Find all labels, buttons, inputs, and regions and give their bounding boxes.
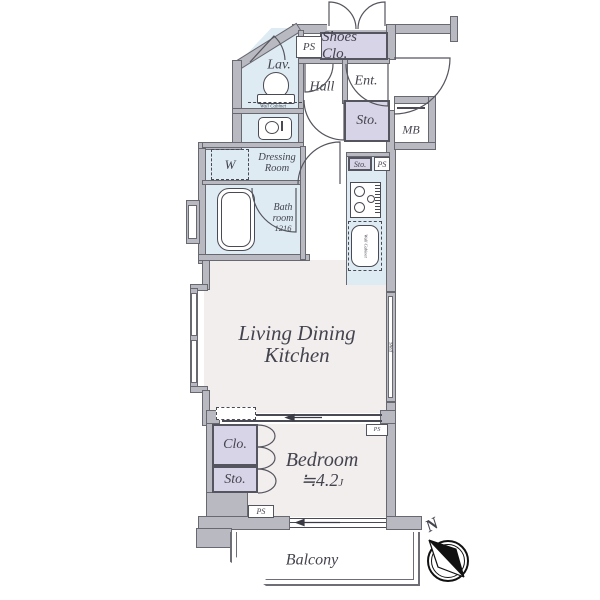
wall-sink-dressing [202,142,304,148]
entrance-storage: Sto. [344,100,390,142]
mb-slit [397,107,425,109]
wall-passage [300,146,306,260]
entrance-storage-label: Sto. [356,113,377,129]
bathroom-line1: Bath [273,203,294,214]
lavatory-label: Lav. [267,59,290,74]
kitchen-storage: Sto. [348,157,372,171]
wall-hall-ent [342,58,348,104]
wall-top-right [388,24,458,34]
kitchen-wall-cabinet-label: Wall Cabinet [363,234,368,257]
bedroom-closet-label: Clo. [223,437,247,453]
bath-window [188,205,197,239]
bathroom-size: 1216 [273,224,294,233]
dressing-room-label: Dressing Room [258,152,296,174]
bay-window-upper [191,293,197,336]
compass-north-label: N [422,514,441,536]
ldk-counter-dashed [216,407,256,420]
washer-label: W [225,158,236,172]
ldk-label: Living Dining Kitchen [238,322,355,366]
shelf-label: Shelf [387,342,392,352]
bedroom-closet: Clo. [212,424,258,466]
bedroom-balcony-window [290,518,386,528]
lav-cabinet-dash [248,102,302,103]
dressing-room-line1: Dressing [258,152,296,163]
lav-wall-cabinet-label: Wall Cabinet [260,104,286,109]
washer-box: W [211,149,249,180]
bedroom-storage-label: Sto. [224,472,245,488]
pipe-space-bedroom: PS [248,505,274,518]
mb-wall-bottom [394,142,436,150]
pipe-space-kitchen: PS [374,157,390,171]
pipe-space-top: PS [296,36,322,58]
pipe-space-bedroom-corner-label: PS [374,427,381,433]
kitchen-storage-label: Sto. [354,160,366,169]
meter-box-label: MB [402,124,419,137]
washbasin-bowl-icon [265,121,279,134]
wall-ldk-bed-right [380,410,396,424]
balcony-label: Balcony [286,553,338,570]
ldk-line2: Kitchen [238,344,355,366]
washbasin-faucet-icon [281,121,283,131]
wall-top-t-stub [450,16,458,42]
entrance-label: Ent. [355,75,378,90]
ldk-bed-slider-line2 [222,420,382,422]
bathtub-inner-icon [221,192,251,247]
pipe-space-kitchen-label: PS [378,160,387,169]
door-entrance-storage [304,100,344,140]
pipe-space-bedroom-corner: PS [366,424,388,436]
stove-burner-3-icon [367,195,375,203]
pipe-space-top-label: PS [303,41,315,53]
bedroom-size: ≒4.2J [286,471,359,490]
wall-bath-ldk [198,254,310,261]
bedroom-size-unit: J [338,477,343,489]
stove-burner-2-icon [354,202,365,213]
ldk-line1: Living Dining [238,322,355,344]
wall-balcony-left-chunk [196,528,232,548]
wall-bottom-right [386,516,422,530]
bathroom-label: Bath room 1216 [273,203,294,233]
bedroom-label: Bedroom ≒4.2J [286,450,359,490]
wall-left-lav [232,60,242,148]
dressing-room-line2: Room [258,163,296,174]
stove-burner-1-icon [354,186,365,197]
floor-plan-page: { "colors": { "wall": "#b9b9c1", "wall_l… [0,0,600,600]
hall-label: Hall [310,81,335,96]
bay-window-lower [191,340,197,383]
bedroom-name: Bedroom [286,450,359,471]
compass-icon [428,540,468,581]
stove-grill-icon [375,185,380,215]
wall-dressing-bath [202,180,306,185]
bedroom-storage: Sto. [212,466,258,493]
shoes-closet-label: Shoes Clo. [322,29,386,63]
pipe-space-bedroom-label: PS [257,507,266,516]
bedroom-balcony-window-mid [290,522,386,523]
shoes-closet: Shoes Clo. [320,32,388,60]
